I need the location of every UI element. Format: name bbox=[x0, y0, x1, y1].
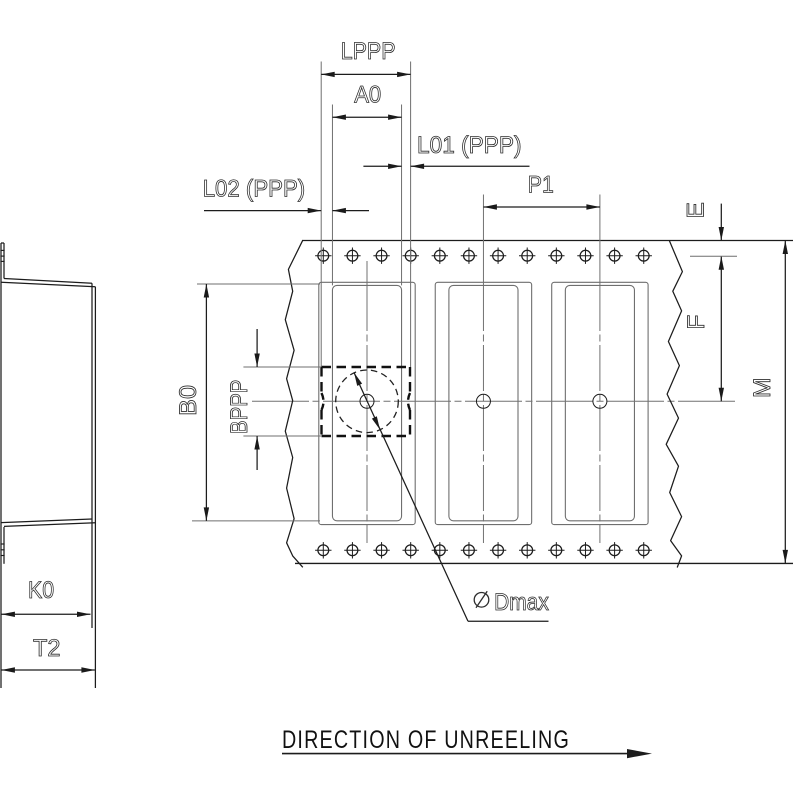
svg-text:DIRECTION OF UNREELING: DIRECTION OF UNREELING bbox=[282, 726, 570, 754]
svg-text:F: F bbox=[683, 315, 710, 330]
svg-text:M: M bbox=[749, 378, 776, 398]
svg-text:K0: K0 bbox=[28, 577, 54, 604]
svg-text:LPPP: LPPP bbox=[341, 38, 396, 65]
svg-text:L02 (PPP): L02 (PPP) bbox=[203, 176, 306, 203]
svg-text:E: E bbox=[682, 202, 709, 218]
svg-text:A0: A0 bbox=[354, 82, 381, 109]
svg-text:T2: T2 bbox=[33, 635, 61, 662]
svg-text:P1: P1 bbox=[528, 171, 554, 198]
svg-text:L01 (PPP): L01 (PPP) bbox=[417, 132, 522, 159]
svg-text:B0: B0 bbox=[175, 385, 202, 416]
svg-text:Dmax: Dmax bbox=[494, 589, 549, 616]
svg-text:BPPP: BPPP bbox=[226, 380, 253, 434]
